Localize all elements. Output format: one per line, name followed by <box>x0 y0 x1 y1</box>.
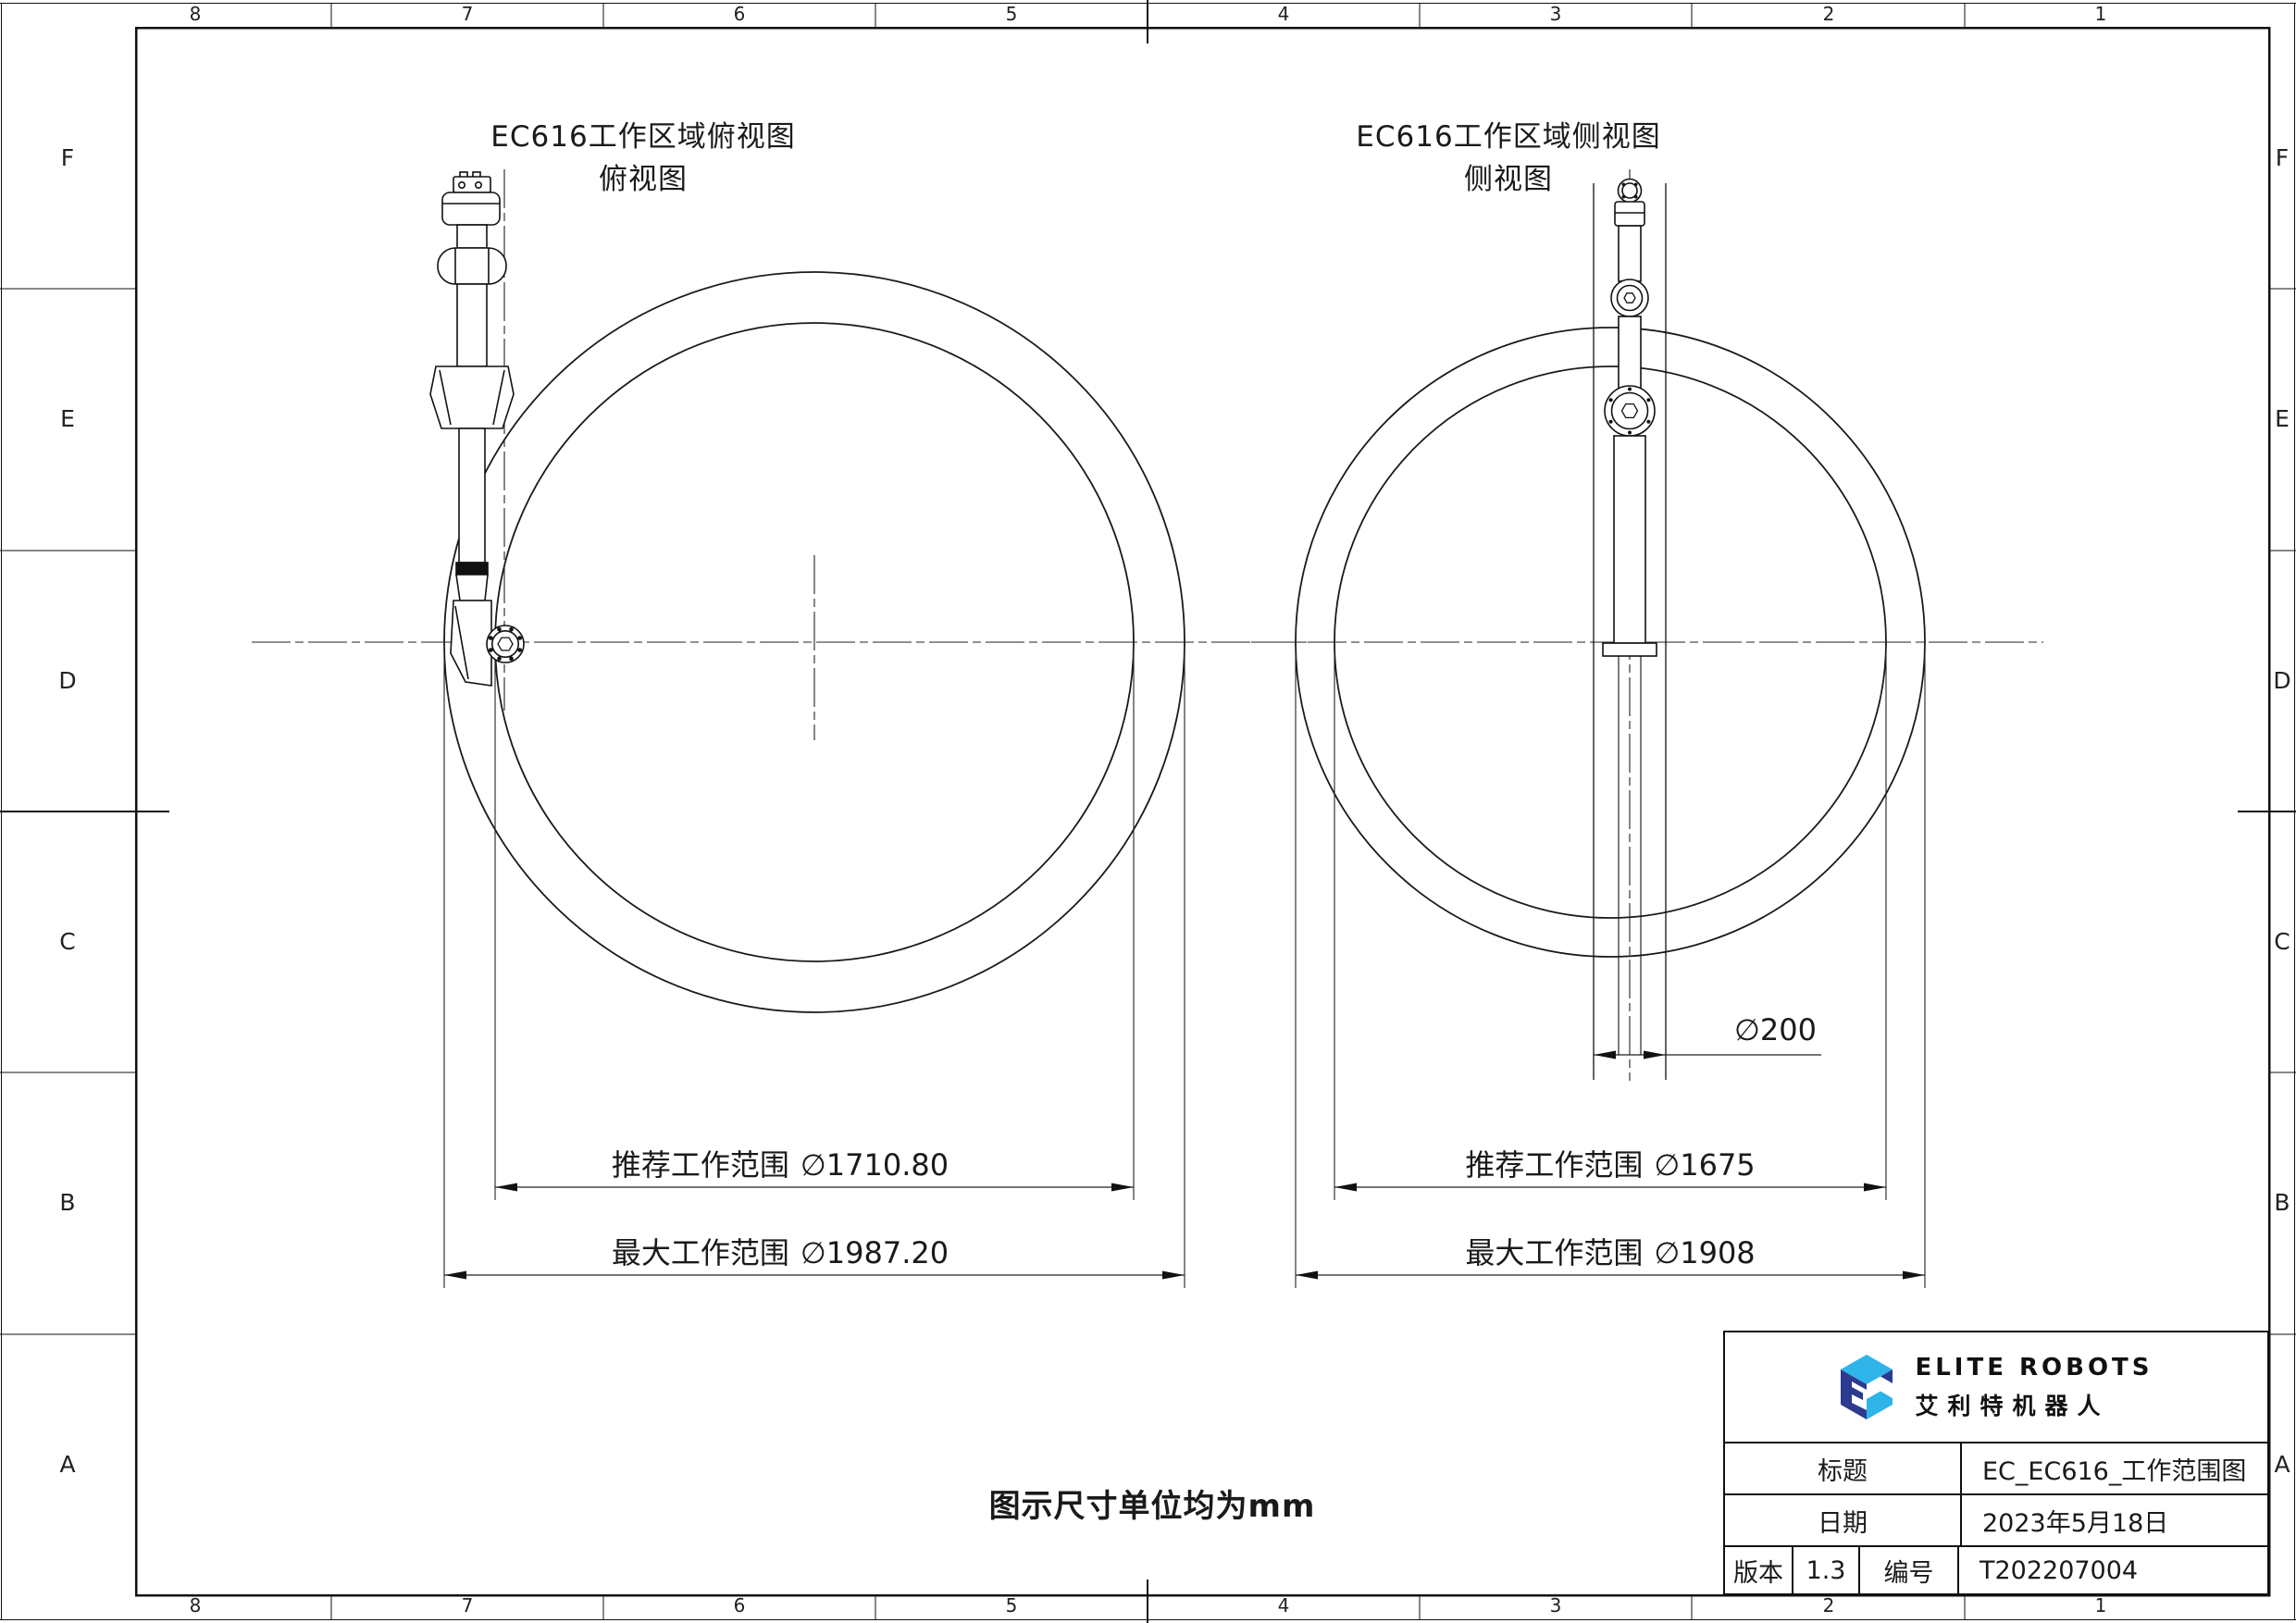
brand-name-cn: 艾利特机器人 <box>1915 1388 2153 1421</box>
zone-letter-left: E <box>40 401 95 438</box>
dimension-label: 最大工作范围 <box>612 1235 789 1270</box>
zone-letter-left: C <box>40 923 95 960</box>
company-logo: ELITE ROBOTS 艾利特机器人 <box>1725 1332 2267 1442</box>
zone-number-top: 7 <box>440 2 495 27</box>
top-view-max-range-dimension: 最大工作范围∅1987.20 <box>493 1230 1067 1272</box>
units-note: 图示尺寸单位均为mm <box>865 1481 1439 1526</box>
date-value: 2023年5月18日 <box>1962 1495 2267 1545</box>
title-value: EC_EC616_工作范围图 <box>1962 1443 2267 1493</box>
zone-letter-left: F <box>40 140 95 177</box>
dimension-value: ∅1675 <box>1654 1147 1755 1183</box>
dimension-value: ∅1987.20 <box>800 1235 949 1270</box>
title-block-row-date: 日期 2023年5月18日 <box>1725 1493 2267 1545</box>
zone-number-top: 1 <box>2073 2 2128 27</box>
elite-robots-logo-icon <box>1839 1354 1894 1420</box>
brand-text: ELITE ROBOTS 艾利特机器人 <box>1915 1354 2153 1421</box>
zone-number-bottom: 4 <box>1256 1593 1311 1618</box>
title-block: ELITE ROBOTS 艾利特机器人 标题 EC_EC616_工作范围图 日期… <box>1723 1331 2269 1595</box>
zone-letter-left: D <box>40 663 95 700</box>
zone-letter-right: B <box>2254 1184 2296 1221</box>
dimension-value: ∅1710.80 <box>800 1147 949 1183</box>
zone-number-bottom: 3 <box>1528 1593 1583 1618</box>
dimension-value: ∅1908 <box>1654 1235 1755 1270</box>
robot-side-view <box>1594 180 1666 1081</box>
side-view-subtitle: 侧视图 <box>1222 159 1795 200</box>
zone-number-top: 5 <box>984 2 1039 27</box>
zone-letter-right: C <box>2254 923 2296 960</box>
dimension-label: 推荐工作范围 <box>612 1147 789 1183</box>
dimension-label: 推荐工作范围 <box>1465 1147 1643 1183</box>
top-view-recommended-range-dimension: 推荐工作范围∅1710.80 <box>493 1142 1067 1184</box>
side-view-title: EC616工作区域侧视图 <box>1222 117 1795 157</box>
top-view-title: EC616工作区域俯视图 <box>356 117 930 157</box>
zone-letter-left: A <box>40 1446 95 1483</box>
zone-number-top: 6 <box>712 2 767 27</box>
extension-lines <box>444 642 1925 1288</box>
zone-number-bottom: 1 <box>2073 1593 2128 1618</box>
zone-number-top: 3 <box>1528 2 1583 27</box>
zone-number-bottom: 6 <box>712 1593 767 1618</box>
version-value: 1.3 <box>1793 1547 1860 1593</box>
zone-number-bottom: 5 <box>984 1593 1039 1618</box>
title-block-row-version: 版本 1.3 编号 T202207004 <box>1725 1545 2267 1593</box>
number-value: T202207004 <box>1959 1547 2267 1593</box>
title-block-row-title: 标题 EC_EC616_工作范围图 <box>1725 1442 2267 1493</box>
zone-number-top: 8 <box>168 2 223 27</box>
centerlines <box>252 169 2043 1081</box>
zone-number-bottom: 7 <box>440 1593 495 1618</box>
robot-top-view <box>430 172 524 686</box>
number-label: 编号 <box>1860 1547 1959 1593</box>
top-view-subtitle: 俯视图 <box>356 159 930 200</box>
zone-number-bottom: 8 <box>168 1593 223 1618</box>
zone-number-top: 2 <box>1801 2 1856 27</box>
zone-letter-right: D <box>2254 663 2296 700</box>
side-view-recommended-range-dimension: 推荐工作范围∅1675 <box>1323 1142 1897 1184</box>
side-view-max-range-dimension: 最大工作范围∅1908 <box>1323 1230 1897 1272</box>
zone-number-top: 4 <box>1256 2 1311 27</box>
zone-letter-left: B <box>40 1184 95 1221</box>
title-label: 标题 <box>1725 1443 1962 1493</box>
brand-name-en: ELITE ROBOTS <box>1915 1354 2153 1381</box>
date-label: 日期 <box>1725 1495 1962 1545</box>
dimension-label: 最大工作范围 <box>1465 1235 1643 1270</box>
side-view-column-diameter-dimension: ∅200 <box>1734 1012 1817 1047</box>
zone-letter-right: F <box>2254 140 2296 177</box>
zone-number-bottom: 2 <box>1801 1593 1856 1618</box>
drawing-sheet: 8 7 6 5 4 3 2 1 8 7 6 5 4 3 2 1 F E D C … <box>0 0 2296 1623</box>
zone-letter-right: E <box>2254 401 2296 438</box>
version-label: 版本 <box>1725 1547 1793 1593</box>
